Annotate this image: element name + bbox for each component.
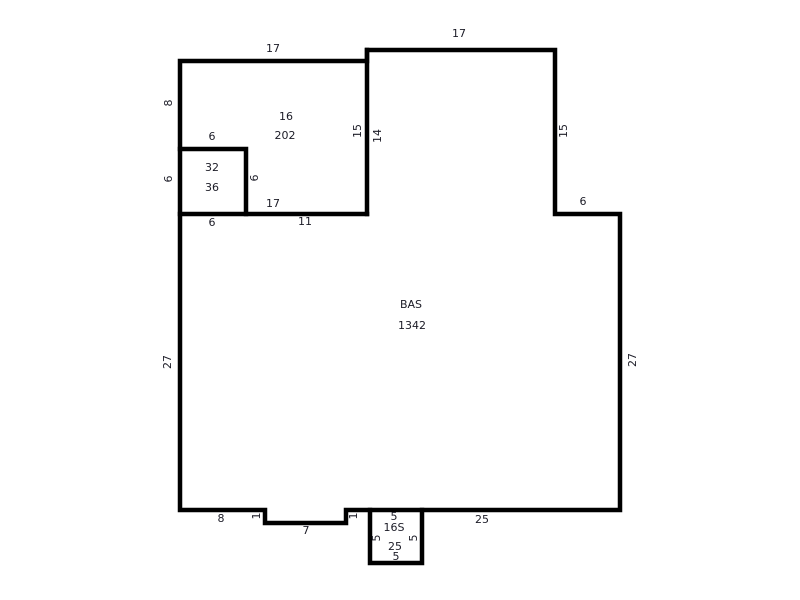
dim-bottom-left: 8 (218, 512, 225, 525)
closet-area-label: 36 (205, 181, 219, 194)
floor-plan-sketch: 17 17 6 17 6 11 6 8 7 25 8 6 6 15 14 15 … (0, 0, 800, 600)
dim-closet-bottom: 6 (209, 216, 216, 229)
dim-inner-wall-right: 14 (371, 129, 384, 143)
dim-closet-right: 6 (248, 175, 261, 182)
dim-notch-left: 1 (250, 513, 263, 520)
dim-bas-top: 11 (298, 215, 312, 228)
stoop-code-label: 16S (384, 521, 405, 534)
floor-plan-canvas: 17 17 6 17 6 11 6 8 7 25 8 6 6 15 14 15 … (0, 0, 800, 600)
dim-bas-left: 27 (161, 355, 174, 369)
bas-area-label: 1342 (398, 319, 426, 332)
dim-notch-bottom: 7 (303, 524, 310, 537)
dim-notch-right: 1 (347, 513, 360, 520)
dim-upper-right-top: 17 (452, 27, 466, 40)
outer-perimeter-wall (180, 50, 620, 523)
dim-closet-left: 6 (162, 176, 175, 183)
dim-room16-bottom: 17 (266, 197, 280, 210)
dim-upper-right-right: 15 (557, 124, 570, 138)
dim-inner-wall-left: 15 (351, 124, 364, 138)
room16-code-label: 16 (279, 110, 293, 123)
dim-stoop-bottom: 5 (393, 550, 400, 563)
room16-area-label: 202 (275, 129, 296, 142)
dim-stoop-left: 5 (370, 535, 383, 542)
dim-stoop-right: 5 (407, 535, 420, 542)
dim-closet-top: 6 (209, 130, 216, 143)
closet-code-label: 32 (205, 161, 219, 174)
dim-bottom-right: 25 (475, 513, 489, 526)
dim-bas-right: 27 (626, 353, 639, 367)
dim-room16-top: 17 (266, 42, 280, 55)
dim-room16-left: 8 (162, 100, 175, 107)
dim-right-step: 6 (580, 195, 587, 208)
bas-code-label: BAS (400, 298, 422, 311)
